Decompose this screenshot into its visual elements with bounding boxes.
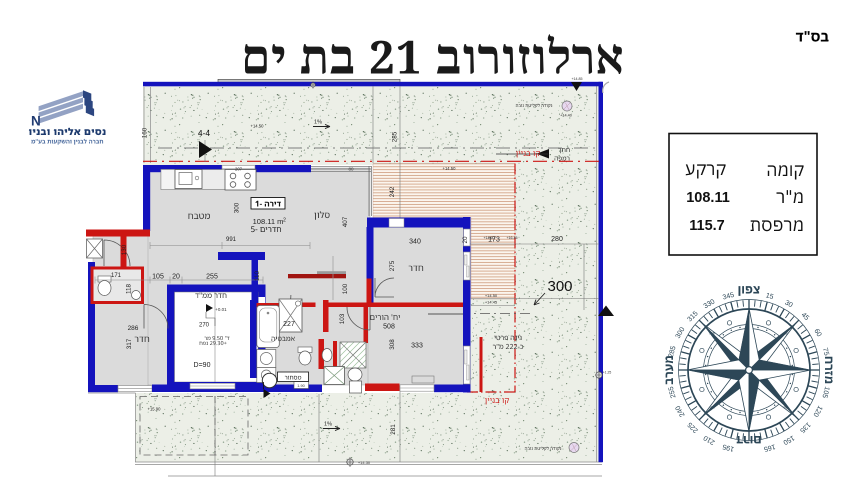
svg-text:280: 280 [551, 236, 563, 243]
svg-text:+14.45: +14.45 [485, 300, 498, 305]
svg-text:340: 340 [409, 239, 421, 246]
svg-text:+14.50: +14.50 [443, 166, 457, 171]
svg-text:+16.45: +16.45 [506, 236, 517, 240]
svg-text:80: 80 [348, 167, 354, 172]
svg-text:NE: NE [783, 332, 788, 336]
svg-text:D=90: D=90 [194, 362, 211, 369]
svg-text:108.11 m: 108.11 m [253, 217, 284, 226]
svg-text:20: 20 [172, 274, 180, 281]
svg-text:105: 105 [152, 274, 164, 281]
svg-text:SW: SW [709, 405, 715, 409]
svg-text:+14.50: +14.50 [485, 293, 498, 298]
svg-text:N: N [31, 114, 41, 129]
svg-text:407: 407 [342, 216, 349, 227]
svg-text:+14.40: +14.40 [560, 114, 572, 118]
svg-text:1%: 1% [324, 422, 332, 428]
svg-text:285: 285 [392, 131, 399, 142]
svg-text:171: 171 [111, 273, 122, 279]
svg-text:+14.85: +14.85 [571, 77, 582, 81]
svg-text:255: 255 [206, 274, 218, 281]
svg-text:300: 300 [547, 278, 572, 295]
svg-text:308: 308 [389, 339, 396, 350]
svg-text:+14.30: +14.30 [358, 460, 371, 465]
svg-text:1.90: 1.90 [297, 384, 304, 388]
svg-text:108.11: 108.11 [686, 190, 730, 206]
svg-text:508: 508 [383, 324, 395, 331]
svg-text:SE: SE [784, 405, 789, 409]
svg-text:160: 160 [142, 127, 149, 138]
svg-text:118: 118 [126, 283, 133, 294]
svg-text:333: 333 [411, 343, 423, 350]
svg-text:20: 20 [462, 236, 469, 244]
svg-text:991: 991 [226, 237, 237, 243]
svg-text:207: 207 [235, 167, 243, 172]
svg-text:130: 130 [121, 244, 128, 255]
svg-text:+15.90: +15.90 [148, 407, 162, 412]
svg-text:4-4: 4-4 [198, 128, 211, 138]
svg-text:+14.60: +14.60 [483, 236, 494, 240]
svg-text:275: 275 [389, 260, 396, 271]
svg-text:103: 103 [339, 313, 346, 324]
svg-text:1%: 1% [314, 120, 322, 126]
svg-text:+14.50: +14.50 [251, 124, 265, 129]
svg-text:317: 317 [126, 338, 133, 349]
svg-text:2: 2 [283, 218, 286, 224]
svg-text:281: 281 [390, 424, 397, 435]
svg-text:100: 100 [342, 283, 349, 294]
svg-text:110: 110 [254, 270, 261, 281]
svg-text:270: 270 [199, 323, 210, 329]
svg-text:115.7: 115.7 [689, 218, 725, 234]
svg-text:NW: NW [709, 332, 715, 336]
svg-text:+0.01: +0.01 [215, 307, 227, 312]
svg-text:227: 227 [283, 321, 295, 328]
svg-text:286: 286 [128, 325, 139, 332]
svg-text:242: 242 [389, 186, 396, 197]
svg-text:300: 300 [234, 202, 241, 213]
svg-text:+1.25: +1.25 [603, 371, 612, 375]
